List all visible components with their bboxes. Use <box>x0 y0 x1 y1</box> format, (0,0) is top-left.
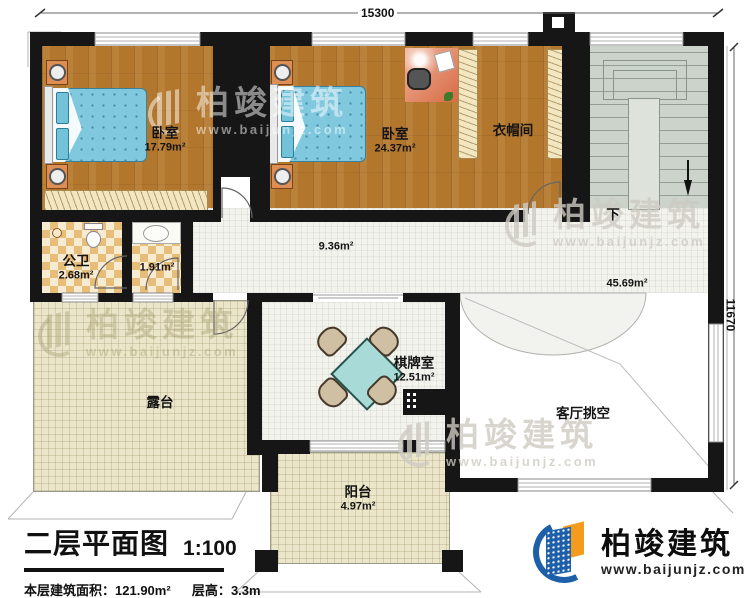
dimension-top: 15300 <box>358 6 397 20</box>
title-block: 二层平面图 1:100 本层建筑面积：121.90m² 层高：3.3m <box>24 522 261 598</box>
bed-headboard <box>269 84 278 164</box>
area-label: 本层建筑面积： <box>24 583 115 598</box>
area-value: 121.90m² <box>115 583 171 598</box>
pillow <box>281 126 294 158</box>
lamp-icon <box>274 168 291 185</box>
room-area: 9.36m² <box>319 240 354 253</box>
wardrobe <box>458 49 478 159</box>
plant-icon <box>444 92 453 101</box>
nightstand <box>46 60 68 85</box>
stair-down-text: 下 <box>606 207 620 223</box>
room-area: 45.69m² <box>607 277 648 290</box>
room-label-terrace: 露台 <box>147 395 174 411</box>
ceiling-lamp-icon <box>52 228 62 238</box>
lamp-icon <box>49 64 66 81</box>
wardrobe <box>547 49 566 159</box>
room-label-cloakroom: 衣帽间 <box>493 123 534 139</box>
nightstand <box>271 164 293 189</box>
lamp-icon <box>274 64 291 81</box>
room-label-bedroom2: 卧室 24.37m² <box>375 126 416 155</box>
brand-logo: 柏竣建筑 www.baijunjz.com <box>533 522 746 584</box>
plan-title: 二层平面图 <box>24 522 169 562</box>
room-label-corridor: 9.36m² <box>319 240 354 253</box>
brand-name: 柏竣建筑 <box>601 529 746 561</box>
room-name: 露台 <box>147 395 174 411</box>
stair-winder-inner <box>613 70 677 100</box>
plan-info: 本层建筑面积：121.90m² 层高：3.3m <box>24 580 261 598</box>
room-label-hall: 45.69m² <box>607 277 648 290</box>
room-name: 卧室 <box>145 125 186 141</box>
brand-url: www.baijunjz.com <box>601 561 746 577</box>
brand-building-icon <box>533 522 591 584</box>
pillow <box>56 128 69 160</box>
dimension-right: 11670 <box>723 299 737 332</box>
stair-center-divider <box>628 98 660 210</box>
room-name: 公卫 <box>59 253 94 269</box>
pillow <box>56 92 69 124</box>
nightstand <box>46 164 68 189</box>
room-area: 1.91m² <box>140 261 175 274</box>
room-area: 4.97m² <box>341 501 376 514</box>
sliding-door <box>313 295 403 298</box>
room-name: 客厅挑空 <box>556 406 610 422</box>
room-area: 2.68m² <box>59 270 94 283</box>
floorplan-canvas: 柏竣建筑 www.baijunjz.com 柏竣建筑 www.baijunjz.… <box>0 0 750 598</box>
bed-headboard <box>44 86 53 164</box>
room-label-chess: 棋牌室 12.51m² <box>394 355 435 384</box>
logo-blue-tower <box>546 527 571 576</box>
plan-scale: 1:100 <box>183 537 237 562</box>
height-label: 层高： <box>192 583 231 598</box>
room-name: 阳台 <box>341 484 376 500</box>
room-name: 卧室 <box>375 126 416 142</box>
room-label-bathroom: 公卫 2.68m² <box>59 253 94 282</box>
desk-chair <box>407 68 431 90</box>
nightstand <box>271 60 293 85</box>
room-name: 棋牌室 <box>394 355 435 371</box>
room-area: 12.51m² <box>394 372 435 385</box>
room-label-washroom: 1.91m² <box>140 261 175 274</box>
stair-down-label: 下 <box>606 207 620 223</box>
room-label-bedroom1: 卧室 17.79m² <box>145 125 186 154</box>
height-value: 3.3m <box>231 583 261 598</box>
room-label-void: 客厅挑空 <box>556 406 610 422</box>
title-rule <box>24 568 224 572</box>
room-area: 24.37m² <box>375 143 416 156</box>
room-name: 衣帽间 <box>493 123 534 139</box>
void-area <box>460 293 708 480</box>
toilet-tank <box>84 223 103 230</box>
room-label-balcony: 阳台 4.97m² <box>341 484 376 513</box>
pillow <box>281 90 294 122</box>
wardrobe <box>44 190 208 211</box>
room-area: 17.79m² <box>145 142 186 155</box>
lamp-icon <box>49 168 66 185</box>
sink-icon <box>143 225 169 242</box>
